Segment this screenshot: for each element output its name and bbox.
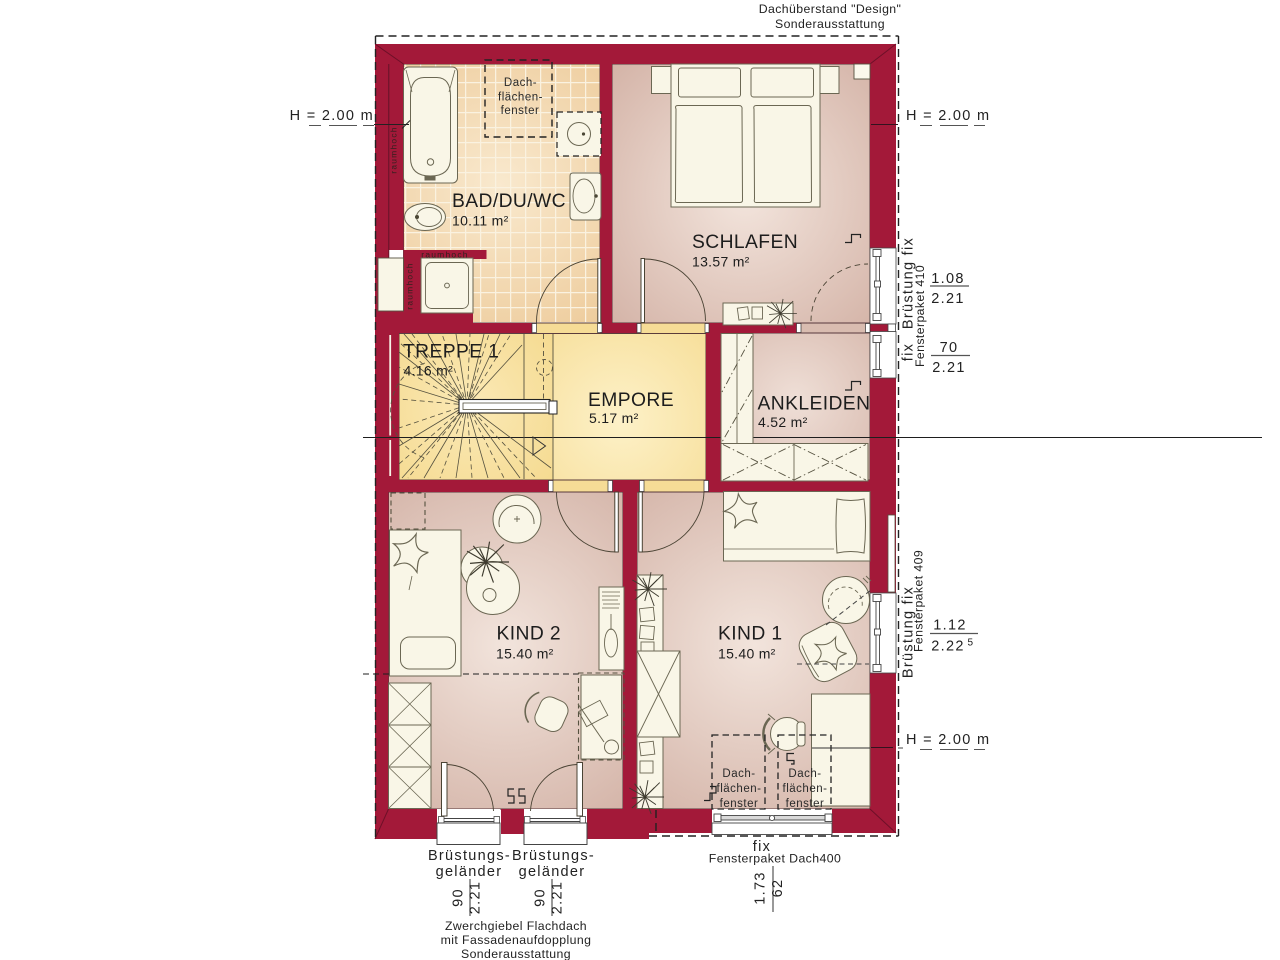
- svg-text:KIND 1: KIND 1: [718, 624, 783, 645]
- svg-text:5.17 m²: 5.17 m²: [589, 410, 639, 426]
- svg-text:15.40 m²: 15.40 m²: [718, 646, 776, 662]
- svg-text:Sonderausstattung: Sonderausstattung: [461, 947, 571, 960]
- svg-text:H = 2.00 m: H = 2.00 m: [290, 108, 374, 124]
- svg-text:Brüstungs-: Brüstungs-: [428, 848, 511, 864]
- svg-text:1.08: 1.08: [931, 271, 964, 287]
- svg-text:BAD/DU/WC: BAD/DU/WC: [452, 191, 566, 212]
- svg-text:4.16 m²: 4.16 m²: [404, 363, 454, 379]
- svg-text:2.21: 2.21: [931, 291, 964, 307]
- svg-text:EMPORE: EMPORE: [588, 390, 674, 411]
- svg-text:ANKLEIDEN: ANKLEIDEN: [758, 394, 871, 415]
- svg-text:1.12: 1.12: [933, 618, 966, 634]
- svg-text:70: 70: [940, 340, 959, 356]
- svg-text:2.21: 2.21: [550, 881, 566, 914]
- svg-text:2.22: 2.22: [931, 639, 964, 655]
- svg-text:SCHLAFEN: SCHLAFEN: [692, 232, 798, 253]
- svg-text:TREPPE 1: TREPPE 1: [403, 341, 499, 362]
- svg-text:fenster: fenster: [786, 798, 825, 810]
- svg-text:15.40 m²: 15.40 m²: [496, 646, 554, 662]
- svg-text:Brüstungs-: Brüstungs-: [512, 848, 595, 864]
- svg-text:Dachüberstand "Design": Dachüberstand "Design": [759, 2, 902, 16]
- svg-text:raumhoch: raumhoch: [389, 126, 399, 173]
- svg-text:H = 2.00 m: H = 2.00 m: [906, 108, 990, 124]
- svg-text:Fensterpaket Dach400: Fensterpaket Dach400: [709, 852, 841, 866]
- svg-text:Dach-: Dach-: [504, 77, 537, 89]
- svg-text:H = 2.00 m: H = 2.00 m: [906, 732, 990, 748]
- svg-text:Sonderausstattung: Sonderausstattung: [775, 17, 885, 31]
- svg-text:62: 62: [770, 879, 786, 898]
- svg-text:geländer: geländer: [436, 864, 503, 880]
- svg-text:raumhoch: raumhoch: [405, 262, 415, 309]
- svg-text:fix: fix: [901, 343, 917, 361]
- svg-text:fenster: fenster: [501, 105, 540, 117]
- svg-text:flächen-: flächen-: [498, 92, 543, 104]
- svg-text:1.73: 1.73: [753, 871, 769, 904]
- svg-text:90: 90: [451, 888, 467, 907]
- svg-text:mit Fassadenaufdopplung: mit Fassadenaufdopplung: [441, 933, 592, 947]
- svg-text:fenster: fenster: [720, 798, 759, 810]
- svg-text:KIND 2: KIND 2: [497, 624, 562, 645]
- svg-text:5: 5: [968, 638, 974, 649]
- svg-text:raumhoch: raumhoch: [421, 250, 468, 260]
- svg-text:Zwerchgiebel Flachdach: Zwerchgiebel Flachdach: [445, 919, 587, 933]
- svg-text:2.21: 2.21: [468, 881, 484, 914]
- svg-text:Dach-: Dach-: [788, 768, 821, 780]
- svg-text:Fensterpaket 409: Fensterpaket 409: [912, 550, 926, 652]
- svg-text:Dach-: Dach-: [722, 768, 755, 780]
- svg-text:90: 90: [533, 888, 549, 907]
- svg-text:4.52 m²: 4.52 m²: [758, 414, 808, 430]
- svg-text:10.11 m²: 10.11 m²: [452, 213, 509, 229]
- svg-text:flächen-: flächen-: [717, 783, 762, 795]
- svg-text:13.57 m²: 13.57 m²: [692, 254, 750, 270]
- svg-text:2.21: 2.21: [932, 360, 965, 376]
- svg-text:geländer: geländer: [519, 864, 586, 880]
- svg-text:flächen-: flächen-: [783, 783, 828, 795]
